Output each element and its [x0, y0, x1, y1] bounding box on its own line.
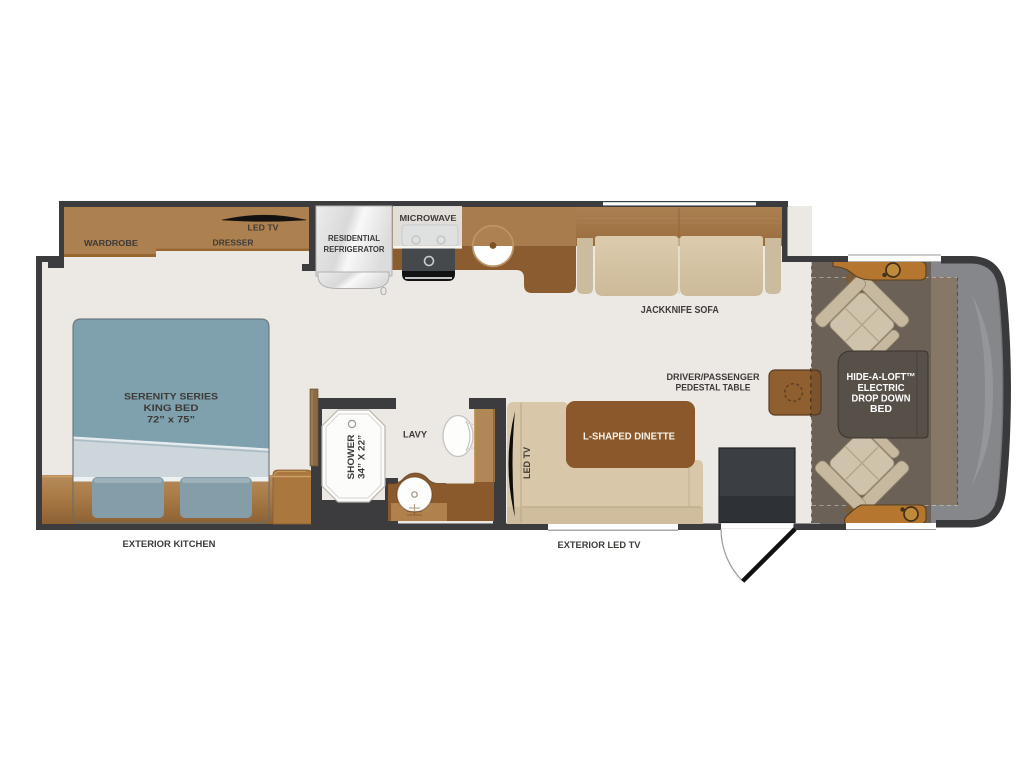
svg-text:JACKKNIFE SOFA: JACKKNIFE SOFA [641, 304, 719, 316]
svg-text:REFRIGERATOR: REFRIGERATOR [324, 245, 385, 254]
svg-text:HIDE-A-LOFT™: HIDE-A-LOFT™ [847, 372, 916, 383]
svg-text:L-SHAPED DINETTE: L-SHAPED DINETTE [583, 432, 675, 443]
svg-text:LED TV: LED TV [248, 223, 279, 233]
svg-text:EXTERIOR KITCHEN: EXTERIOR KITCHEN [123, 539, 216, 550]
svg-text:SERENITY SERIES: SERENITY SERIES [124, 392, 218, 403]
svg-text:KING BED: KING BED [144, 403, 199, 414]
svg-text:MICROWAVE: MICROWAVE [400, 214, 458, 223]
svg-text:DRESSER: DRESSER [213, 238, 254, 248]
svg-text:DROP DOWN: DROP DOWN [852, 394, 911, 405]
svg-text:72” x 75”: 72” x 75” [147, 415, 195, 426]
svg-text:LAVY: LAVY [403, 430, 428, 441]
svg-text:DRIVER/PASSENGER: DRIVER/PASSENGER [667, 372, 760, 382]
svg-text:LED TV: LED TV [522, 447, 532, 479]
svg-text:WARDROBE: WARDROBE [84, 239, 139, 248]
svg-text:BED: BED [870, 404, 892, 415]
svg-text:34” X 22”: 34” X 22” [357, 435, 367, 479]
svg-text:SHOWER: SHOWER [346, 434, 356, 480]
svg-text:ELECTRIC: ELECTRIC [858, 383, 905, 394]
svg-text:PEDESTAL TABLE: PEDESTAL TABLE [676, 383, 751, 393]
svg-text:RESIDENTIAL: RESIDENTIAL [328, 234, 380, 243]
svg-text:EXTERIOR LED TV: EXTERIOR LED TV [558, 540, 642, 551]
